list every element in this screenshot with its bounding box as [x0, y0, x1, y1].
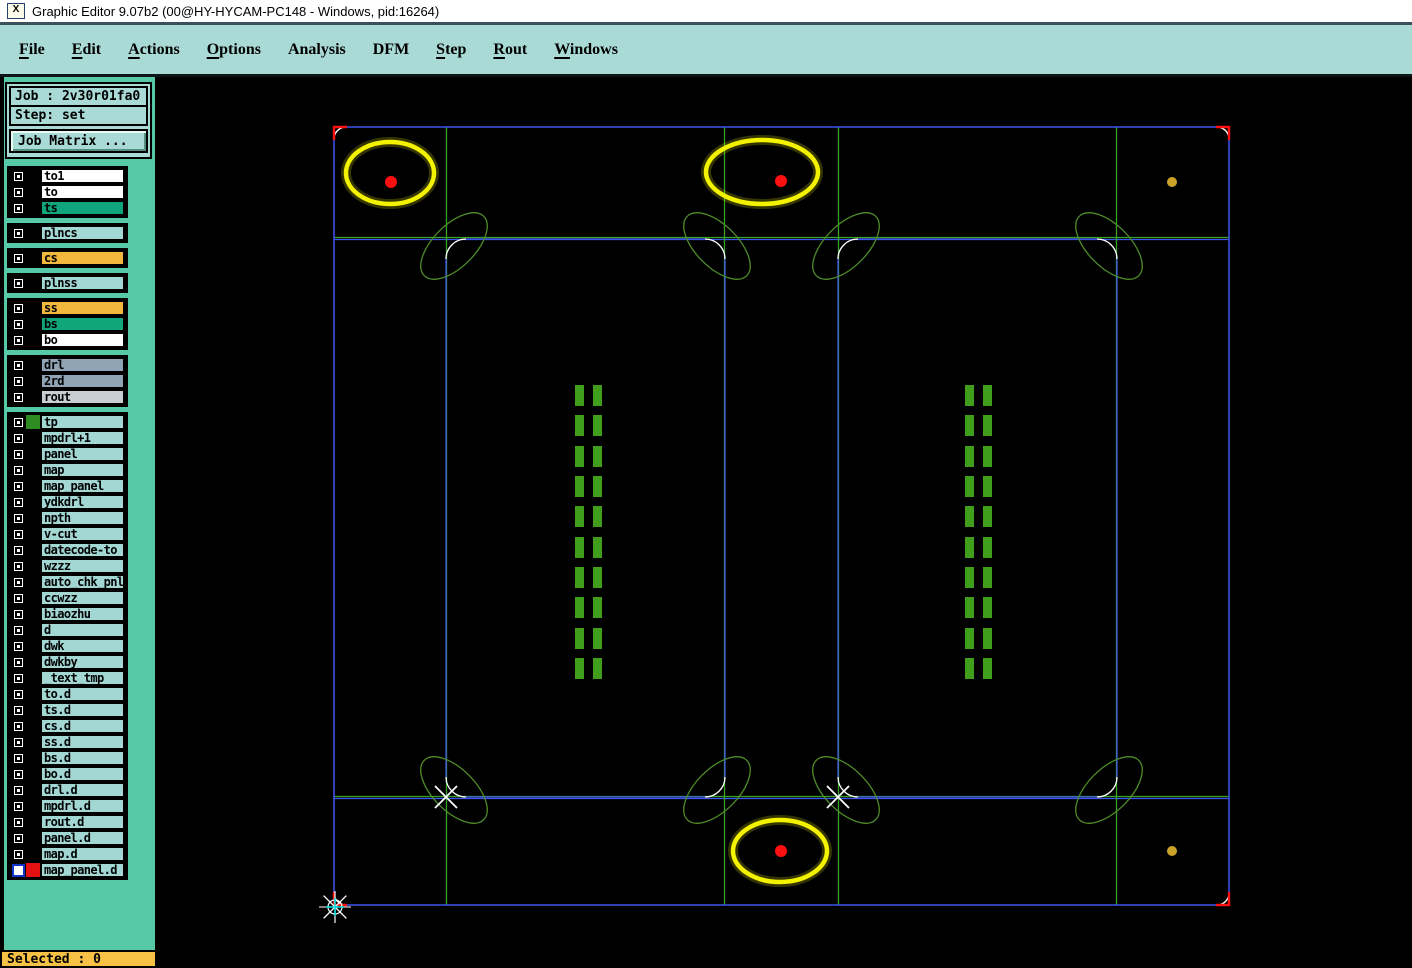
layer-row-2rd[interactable]: 2rd — [9, 373, 126, 389]
layer-visibility-checkbox[interactable] — [12, 752, 25, 765]
corner-relief-shape — [672, 745, 761, 834]
pad-bar — [983, 537, 992, 558]
layer-row-map_panel[interactable]: map_panel — [9, 478, 126, 494]
pad-bar — [965, 385, 974, 406]
layer-row-ccwzz[interactable]: ccwzz — [9, 590, 126, 606]
fiducial-ellipse — [346, 142, 434, 204]
checkbox-inner-mark — [15, 787, 22, 794]
checkbox-inner-mark — [15, 851, 22, 858]
gold-target-dot — [1167, 846, 1177, 856]
layer-row-cs.d[interactable]: cs.d — [9, 718, 126, 734]
board-corner-arc — [838, 239, 858, 259]
layer-name-label[interactable]: drl — [41, 358, 124, 372]
outer-corner-arc — [334, 127, 346, 139]
canvas[interactable] — [155, 77, 1412, 968]
layer-color-swatch[interactable] — [26, 415, 40, 429]
menu-item-step[interactable]: Step — [436, 41, 466, 59]
layer-name-label[interactable]: ts — [41, 201, 124, 215]
pad-bar — [983, 567, 992, 588]
checkbox-inner-mark — [15, 835, 22, 842]
layer-row-spacer — [25, 275, 41, 291]
job-matrix-button[interactable]: Job Matrix ... — [9, 129, 148, 153]
layer-row-to1[interactable]: to1 — [9, 168, 126, 184]
checkbox-inner-mark — [15, 451, 22, 458]
layer-name-label[interactable]: wzzz — [41, 559, 124, 573]
pad-bar — [965, 628, 974, 649]
layer-row-spacer — [25, 430, 41, 446]
layer-row-plnss[interactable]: plnss — [9, 275, 126, 291]
layer-group-2: cs — [7, 248, 128, 268]
layer-visibility-checkbox[interactable] — [12, 170, 25, 183]
layer-row-spacer — [25, 574, 41, 590]
checkbox-inner-mark — [15, 595, 22, 602]
job-name-label: Job : 2v30r01fa0 — [9, 86, 148, 107]
layer-row-bs.d[interactable]: bs.d — [9, 750, 126, 766]
layer-row-spacer — [25, 798, 41, 814]
checkbox-inner-mark — [15, 362, 22, 369]
layer-row-spacer — [25, 462, 41, 478]
pad-bar — [983, 415, 992, 436]
layer-row-spacer — [25, 702, 41, 718]
pad-bar — [983, 658, 992, 679]
layer-row-spacer — [25, 734, 41, 750]
layer-visibility-checkbox[interactable] — [12, 736, 25, 749]
layer-row-drl[interactable]: drl — [9, 357, 126, 373]
layer-row-biaozhu[interactable]: biaozhu — [9, 606, 126, 622]
layer-row-spacer — [25, 846, 41, 862]
fiducial-red-dot — [775, 175, 787, 187]
checkbox-inner-mark — [15, 531, 22, 538]
layer-name-label[interactable]: to — [41, 185, 124, 199]
layer-name-label[interactable]: map — [41, 463, 124, 477]
layer-row-spacer — [25, 332, 41, 348]
layer-row-spacer — [25, 373, 41, 389]
corner-relief-shape — [1064, 201, 1153, 290]
gold-target-dot — [1167, 177, 1177, 187]
layer-row-spacer — [25, 718, 41, 734]
layer-row-tp[interactable]: tp — [9, 414, 126, 430]
layer-visibility-checkbox[interactable] — [12, 656, 25, 669]
layer-group-5: drl2rdrout — [7, 355, 128, 407]
layer-visibility-checkbox[interactable] — [12, 416, 25, 429]
layer-visibility-checkbox[interactable] — [12, 318, 25, 331]
layer-name-label[interactable]: ydkdrl — [41, 495, 124, 509]
layer-visibility-checkbox[interactable] — [12, 528, 25, 541]
checkbox-inner-mark — [15, 579, 22, 586]
layer-row-npth[interactable]: npth — [9, 510, 126, 526]
layer-name-label[interactable]: bo — [41, 333, 124, 347]
menu-item-rout[interactable]: Rout — [493, 41, 527, 59]
layer-row-spacer — [25, 494, 41, 510]
checkbox-inner-mark — [15, 189, 22, 196]
layer-visibility-checkbox[interactable] — [12, 432, 25, 445]
layer-name-label[interactable]: 2rd — [41, 374, 124, 388]
layer-row-spacer — [25, 750, 41, 766]
checkbox-inner-mark — [15, 755, 22, 762]
pad-bar — [983, 597, 992, 618]
layer-visibility-checkbox[interactable] — [12, 768, 25, 781]
layer-row-wzzz[interactable]: wzzz — [9, 558, 126, 574]
layer-visibility-checkbox[interactable] — [12, 252, 25, 265]
checkbox-inner-mark — [15, 659, 22, 666]
layer-row-map.d[interactable]: map.d — [9, 846, 126, 862]
pad-bar — [593, 597, 602, 618]
layer-group-4: ssbsbo — [7, 298, 128, 350]
layer-visibility-checkbox[interactable] — [12, 202, 25, 215]
layer-row-ydkdrl[interactable]: ydkdrl — [9, 494, 126, 510]
layer-row-spacer — [25, 184, 41, 200]
layer-row-cs[interactable]: cs — [9, 250, 126, 266]
layer-name-label[interactable]: map.d — [41, 847, 124, 861]
layer-name-label[interactable]: to.d — [41, 687, 124, 701]
layer-name-label[interactable]: npth — [41, 511, 124, 525]
board-corner-arc — [705, 777, 725, 797]
layer-row-spacer — [25, 590, 41, 606]
board-corner-arc — [1097, 239, 1117, 259]
layer-row-ss.d[interactable]: ss.d — [9, 734, 126, 750]
fiducial-red-dot — [385, 176, 397, 188]
layer-row-spacer — [25, 446, 41, 462]
pad-bar — [965, 476, 974, 497]
layer-row-spacer — [25, 389, 41, 405]
layer-row-auto_chk_pnl[interactable]: auto_chk_pnl — [9, 574, 126, 590]
checkbox-inner-mark — [15, 771, 22, 778]
layer-name-label[interactable]: panel.d — [41, 831, 124, 845]
layer-visibility-checkbox[interactable] — [12, 816, 25, 829]
layer-row-dwkby[interactable]: dwkby — [9, 654, 126, 670]
layer-row-spacer — [25, 200, 41, 216]
pad-bar — [575, 385, 584, 406]
pad-bar — [593, 506, 602, 527]
graphic-editor-window: X Graphic Editor 9.07b2 (00@HY-HYCAM-PC1… — [0, 0, 1412, 968]
menu-item-actions[interactable]: Actions — [128, 41, 180, 59]
pad-bar — [983, 506, 992, 527]
layer-name-label[interactable]: map_panel.d — [41, 863, 124, 877]
checkbox-inner-mark — [15, 547, 22, 554]
checkbox-inner-mark — [15, 803, 22, 810]
layer-row-map_panel.d[interactable]: map_panel.d — [9, 862, 126, 878]
window-icon[interactable]: X — [7, 3, 25, 19]
checkbox-inner-mark — [15, 819, 22, 826]
layer-group-6: tpmpdrl+1panelmapmap_panelydkdrlnpthv-cu… — [7, 412, 128, 880]
pad-bar — [593, 658, 602, 679]
pad-bar — [575, 506, 584, 527]
sidebar: Job : 2v30r01fa0 Step: set Job Matrix ..… — [0, 77, 155, 950]
layer-name-label[interactable]: ccwzz — [41, 591, 124, 605]
layer-row-spacer — [25, 542, 41, 558]
pad-bar — [593, 567, 602, 588]
layer-name-label[interactable]: rout.d — [41, 815, 124, 829]
layer-name-label[interactable]: ts.d — [41, 703, 124, 717]
layer-visibility-checkbox[interactable] — [12, 608, 25, 621]
layer-row-spacer — [25, 782, 41, 798]
layer-row-drl.d[interactable]: drl.d — [9, 782, 126, 798]
layer-row-spacer — [25, 670, 41, 686]
layer-visibility-checkbox[interactable] — [12, 227, 25, 240]
layer-name-label[interactable]: ss.d — [41, 735, 124, 749]
layer-row-spacer — [25, 606, 41, 622]
pad-bar — [575, 567, 584, 588]
checkbox-inner-mark — [15, 337, 22, 344]
layer-row-spacer — [25, 250, 41, 266]
layer-name-label[interactable]: bs.d — [41, 751, 124, 765]
layer-row-bs[interactable]: bs — [9, 316, 126, 332]
pad-bar — [575, 628, 584, 649]
layer-row-ss[interactable]: ss — [9, 300, 126, 316]
layer-row-spacer — [25, 622, 41, 638]
layer-row-spacer — [25, 168, 41, 184]
checkbox-inner-mark — [15, 691, 22, 698]
layer-list: to1totsplncscsplnssssbsbodrl2rdrouttpmpd… — [7, 166, 128, 880]
corner-relief-shape — [409, 201, 498, 290]
layer-visibility-checkbox[interactable] — [12, 480, 25, 493]
layer-row-to[interactable]: to — [9, 184, 126, 200]
layer-visibility-checkbox[interactable] — [12, 359, 25, 372]
layer-visibility-checkbox[interactable] — [12, 704, 25, 717]
layer-group-1: plncs — [7, 223, 128, 243]
pad-bar — [575, 476, 584, 497]
menu-item-file[interactable]: File — [19, 41, 45, 59]
layer-name-label[interactable]: bo.d — [41, 767, 124, 781]
layer-visibility-checkbox[interactable] — [12, 800, 25, 813]
pad-bar — [575, 415, 584, 436]
layer-visibility-checkbox[interactable] — [12, 832, 25, 845]
layer-row-dwk[interactable]: dwk — [9, 638, 126, 654]
checkbox-inner-mark — [15, 378, 22, 385]
checkbox-inner-mark — [15, 205, 22, 212]
layer-row-plncs[interactable]: plncs — [9, 225, 126, 241]
corner-relief-shape — [672, 201, 761, 290]
layer-visibility-checkbox[interactable] — [12, 277, 25, 290]
checkbox-inner-mark — [15, 419, 22, 426]
layer-name-label[interactable]: bs — [41, 317, 124, 331]
fiducial-red-dot — [775, 845, 787, 857]
menu-item-edit[interactable]: Edit — [72, 41, 101, 59]
checkbox-inner-mark — [15, 627, 22, 634]
checkbox-inner-mark — [15, 173, 22, 180]
layer-visibility-checkbox[interactable] — [12, 592, 25, 605]
layer-name-label[interactable]: cs — [41, 251, 124, 265]
layer-row-spacer — [25, 357, 41, 373]
layer-visibility-checkbox[interactable] — [12, 672, 25, 685]
layer-name-label[interactable]: dwk — [41, 639, 124, 653]
pad-bar — [575, 658, 584, 679]
corner-relief-shape — [1064, 745, 1153, 834]
step-name-label: Step: set — [9, 105, 148, 126]
layer-group-3: plnss — [7, 273, 128, 293]
layer-row-map[interactable]: map — [9, 462, 126, 478]
pad-bar — [965, 567, 974, 588]
pad-bar — [983, 628, 992, 649]
layer-row-spacer — [25, 830, 41, 846]
layer-row-spacer — [25, 300, 41, 316]
layer-row-bo[interactable]: bo — [9, 332, 126, 348]
layer-visibility-checkbox[interactable] — [12, 391, 25, 404]
layer-row-spacer — [25, 225, 41, 241]
menu-item-options[interactable]: Options — [207, 41, 261, 59]
pad-bar — [983, 446, 992, 467]
menu-item-analysis[interactable]: Analysis — [288, 41, 346, 59]
layer-row-spacer — [25, 766, 41, 782]
layer-row-d[interactable]: d — [9, 622, 126, 638]
layer-visibility-checkbox[interactable] — [12, 512, 25, 525]
checkbox-inner-mark — [15, 499, 22, 506]
layer-name-label[interactable]: plnss — [41, 276, 124, 290]
checkbox-inner-mark — [15, 255, 22, 262]
checkbox-inner-mark — [15, 394, 22, 401]
pad-bar — [593, 385, 602, 406]
layer-visibility-checkbox[interactable] — [12, 375, 25, 388]
layer-visibility-checkbox[interactable] — [12, 720, 25, 733]
layer-visibility-checkbox[interactable] — [12, 496, 25, 509]
checkbox-inner-mark — [15, 563, 22, 570]
layer-name-label[interactable]: datecode-to — [41, 543, 124, 557]
outer-corner-arc — [334, 893, 346, 905]
checkbox-inner-mark — [15, 321, 22, 328]
title-bar: X Graphic Editor 9.07b2 (00@HY-HYCAM-PC1… — [0, 0, 1412, 22]
pad-bar — [593, 537, 602, 558]
pad-bar — [965, 658, 974, 679]
menu-item-windows[interactable]: Windows — [554, 41, 618, 59]
layer-row-mpdrl+1[interactable]: mpdrl+1 — [9, 430, 126, 446]
checkbox-inner-mark — [15, 515, 22, 522]
pad-bar — [965, 415, 974, 436]
layer-name-label[interactable]: biaozhu — [41, 607, 124, 621]
layer-name-label[interactable]: cs.d — [41, 719, 124, 733]
pad-bar — [593, 415, 602, 436]
checkbox-inner-mark — [15, 483, 22, 490]
layer-name-label[interactable]: tp — [41, 415, 124, 429]
selected-status: Selected : 0 — [0, 950, 158, 968]
layer-name-label[interactable]: _text_tmp — [41, 671, 124, 685]
pad-bar — [983, 385, 992, 406]
layer-row-datecode-to[interactable]: datecode-to — [9, 542, 126, 558]
layer-row-panel.d[interactable]: panel.d — [9, 830, 126, 846]
layer-visibility-checkbox[interactable] — [12, 186, 25, 199]
layer-visibility-checkbox[interactable] — [12, 448, 25, 461]
layer-name-label[interactable]: plncs — [41, 226, 124, 240]
layer-row-spacer — [25, 558, 41, 574]
layer-row-ts[interactable]: ts — [9, 200, 126, 216]
layer-visibility-checkbox[interactable] — [12, 688, 25, 701]
checkbox-inner-mark — [15, 643, 22, 650]
corner-relief-shape — [801, 201, 890, 290]
layer-row-v-cut[interactable]: v-cut — [9, 526, 126, 542]
layer-name-label[interactable]: auto_chk_pnl — [41, 575, 124, 589]
layer-visibility-checkbox[interactable] — [12, 640, 25, 653]
layer-visibility-checkbox[interactable] — [12, 576, 25, 589]
layer-row-_text_tmp[interactable]: _text_tmp — [9, 670, 126, 686]
layer-row-spacer — [25, 654, 41, 670]
layer-name-label[interactable]: v-cut — [41, 527, 124, 541]
pad-bar — [575, 597, 584, 618]
layer-name-label[interactable]: map_panel — [41, 479, 124, 493]
checkbox-inner-mark — [15, 280, 22, 287]
checkbox-inner-mark — [15, 723, 22, 730]
panel-drawing[interactable] — [155, 77, 1412, 968]
layer-row-mpdrl.d[interactable]: mpdrl.d — [9, 798, 126, 814]
layer-row-spacer — [25, 526, 41, 542]
checkbox-inner-mark — [15, 675, 22, 682]
pad-bar — [983, 476, 992, 497]
layer-row-rout.d[interactable]: rout.d — [9, 814, 126, 830]
layer-group-0: to1tots — [7, 166, 128, 218]
checkbox-inner-mark — [15, 435, 22, 442]
pad-bar — [575, 446, 584, 467]
outer-corner-arc — [1217, 893, 1229, 905]
checkbox-inner-mark — [15, 739, 22, 746]
layer-name-label[interactable]: mpdrl.d — [41, 799, 124, 813]
layer-row-panel[interactable]: panel — [9, 446, 126, 462]
layer-visibility-checkbox[interactable] — [12, 464, 25, 477]
layer-row-spacer — [25, 686, 41, 702]
layer-row-to.d[interactable]: to.d — [9, 686, 126, 702]
layer-name-label[interactable]: panel — [41, 447, 124, 461]
layer-visibility-checkbox[interactable] — [12, 544, 25, 557]
pad-bar — [965, 446, 974, 467]
layer-row-bo.d[interactable]: bo.d — [9, 766, 126, 782]
pad-bar — [593, 628, 602, 649]
layer-row-spacer — [25, 478, 41, 494]
fiducial-ellipse — [706, 140, 818, 204]
layer-name-label[interactable]: drl.d — [41, 783, 124, 797]
checkbox-inner-mark — [15, 707, 22, 714]
layer-visibility-checkbox[interactable] — [12, 784, 25, 797]
checkbox-inner-mark — [15, 467, 22, 474]
outer-corner-arc — [1217, 127, 1229, 139]
layer-color-swatch[interactable] — [26, 863, 40, 877]
layer-name-label[interactable]: ss — [41, 301, 124, 315]
menu-bar: FileEditActionsOptionsAnalysisDFMStepRou… — [0, 22, 1412, 77]
layer-name-label[interactable]: mpdrl+1 — [41, 431, 124, 445]
checkbox-inner-mark — [15, 305, 22, 312]
layer-name-label[interactable]: dwkby — [41, 655, 124, 669]
window-title: Graphic Editor 9.07b2 (00@HY-HYCAM-PC148… — [32, 4, 439, 19]
pad-bar — [593, 476, 602, 497]
layer-name-label[interactable]: d — [41, 623, 124, 637]
layer-row-spacer — [25, 510, 41, 526]
board-corner-arc — [705, 239, 725, 259]
board-corner-arc — [446, 239, 466, 259]
pad-bar — [593, 446, 602, 467]
layer-row-spacer — [25, 814, 41, 830]
pad-bar — [965, 537, 974, 558]
menu-item-dfm[interactable]: DFM — [373, 41, 409, 59]
board-corner-arc — [1097, 777, 1117, 797]
layer-row-rout[interactable]: rout — [9, 389, 126, 405]
layer-row-ts.d[interactable]: ts.d — [9, 702, 126, 718]
checkbox-inner-mark — [15, 611, 22, 618]
checkbox-inner-mark — [15, 230, 22, 237]
pad-bar — [965, 506, 974, 527]
layer-name-label[interactable]: to1 — [41, 169, 124, 183]
layer-row-spacer — [25, 316, 41, 332]
checkbox-inner-mark — [17, 869, 20, 872]
layer-visibility-checkbox[interactable] — [12, 560, 25, 573]
layer-visibility-checkbox[interactable] — [12, 334, 25, 347]
layer-visibility-checkbox[interactable] — [12, 302, 25, 315]
layer-visibility-checkbox[interactable] — [12, 848, 25, 861]
layer-visibility-checkbox[interactable] — [12, 864, 25, 877]
layer-name-label[interactable]: rout — [41, 390, 124, 404]
pad-bar — [575, 537, 584, 558]
layer-row-spacer — [25, 638, 41, 654]
job-panel: Job : 2v30r01fa0 Step: set Job Matrix ..… — [5, 82, 152, 159]
pad-bar — [965, 597, 974, 618]
layer-visibility-checkbox[interactable] — [12, 624, 25, 637]
